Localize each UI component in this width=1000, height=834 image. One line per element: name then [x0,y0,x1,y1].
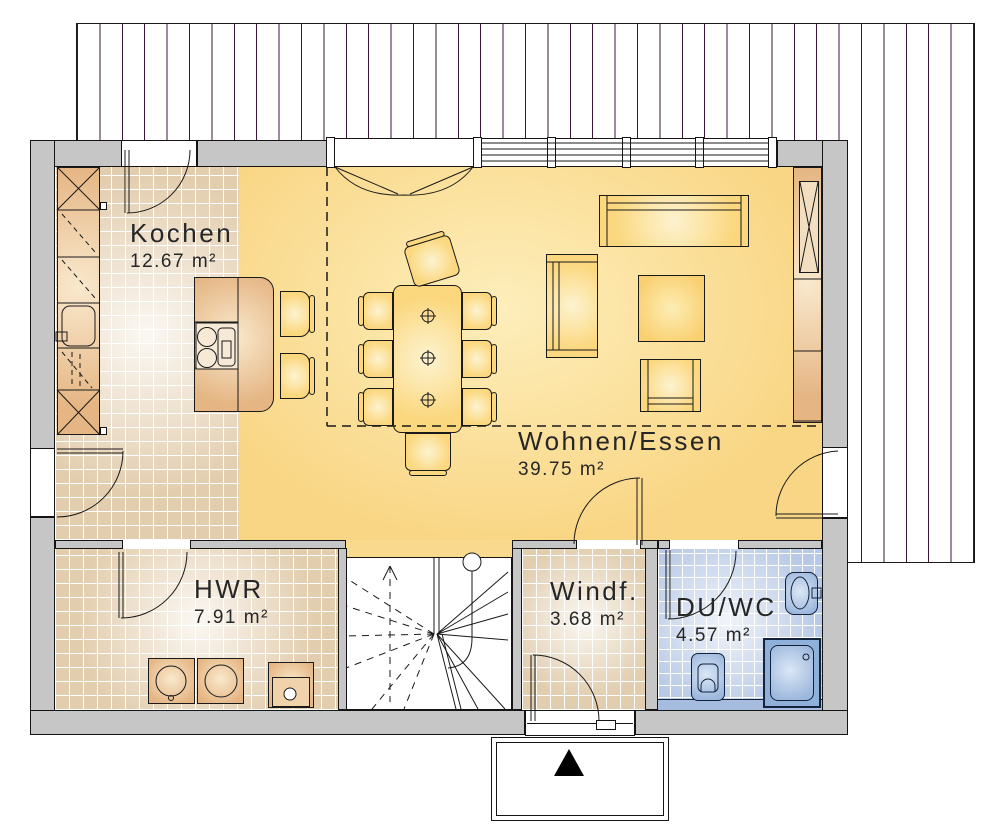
living-floor-strip [346,540,512,557]
window-post [547,137,556,168]
room-label-duwc: DU/WC 4.57 m² [676,594,777,647]
chair-backrest [309,295,315,333]
island-chair [280,353,310,399]
chair-backrest [358,392,364,422]
room-name: DU/WC [676,594,777,621]
dining-table [393,285,462,433]
utility-sink [272,677,310,707]
sofa-large [599,195,749,247]
window-post [768,137,777,168]
left-door-recess [30,448,55,517]
window-post [473,137,482,168]
entrance-marker-icon [554,749,584,776]
hwr-door-opening [123,540,190,549]
room-area: 7.91 m² [194,607,269,629]
dining-chair [462,292,492,330]
dryer [197,658,244,704]
window-post [695,137,704,168]
dining-chair [462,388,492,426]
chair-backrest [358,296,364,326]
wall-windfang-right [645,548,658,710]
wall-right-upper [822,140,848,448]
entrance-sill-detail [596,720,616,730]
room-area: 3.68 m² [550,609,639,631]
room-area: 4.57 m² [676,625,777,647]
room-area: 12.67 m² [130,251,233,273]
dining-chair [363,388,393,426]
cabinet-handle [100,202,107,210]
chair-backrest [491,392,497,422]
terrace-door-recess [822,447,848,518]
shelf-cabinet [799,181,819,273]
room-name: Kochen [130,220,233,247]
wall-bottom-right [635,710,848,735]
staircase-floor [346,557,512,710]
room-area: 39.75 m² [518,459,724,481]
cabinet-handle [100,427,107,435]
duwc-door-opening [670,540,738,549]
room-label-kochen: Kochen 12.67 m² [130,220,233,273]
room-name: Windf. [550,578,639,605]
room-label-wohnen: Wohnen/Essen 39.75 m² [518,428,724,481]
coffee-table [638,275,705,342]
wall-hwr-top-right [190,540,346,549]
kitchen-counter [57,167,100,435]
room-label-hwr: HWR 7.91 m² [194,576,269,629]
wall-top-mid [197,140,327,167]
floor-plan: Kochen 12.67 m² Wohnen/Essen 39.75 m² HW… [0,0,1000,834]
window-post [326,137,335,168]
wall-right-lower [822,518,848,735]
dining-chair [363,292,393,330]
kitchen-island [194,277,274,412]
wall-stair-right [512,548,522,710]
wall-windfang-top-left [512,540,577,549]
dining-chair [462,340,492,378]
toilet [691,653,725,701]
dining-chair [363,340,393,378]
wall-left-lower [30,517,55,735]
room-label-windfang: Windf. 3.68 m² [550,578,639,631]
wall-left-upper [30,140,55,449]
kitchen-door-recess [121,140,197,167]
room-name: Wohnen/Essen [518,428,724,455]
windfang-door-opening [577,540,640,549]
wall-duwc-top-left [658,540,670,549]
chair-backrest [358,344,364,374]
shower-tray [770,645,814,701]
entrance-threshold-line [527,723,633,724]
washing-machine [148,658,195,704]
wall-stair-left [338,548,347,710]
chair-backrest [491,296,497,326]
dining-chair-foot [405,433,451,471]
washbasin [785,572,818,615]
sofa-small [546,254,598,358]
chair-backrest [409,470,447,476]
chair-backrest [309,357,315,395]
chair-backrest [491,344,497,374]
island-chair [280,291,310,337]
wall-hwr-top-left [55,540,123,549]
room-name: HWR [194,576,269,603]
window-post [622,137,631,168]
armchair [640,359,701,412]
wall-duwc-top-right [738,540,822,549]
wall-bottom-left [30,710,525,735]
